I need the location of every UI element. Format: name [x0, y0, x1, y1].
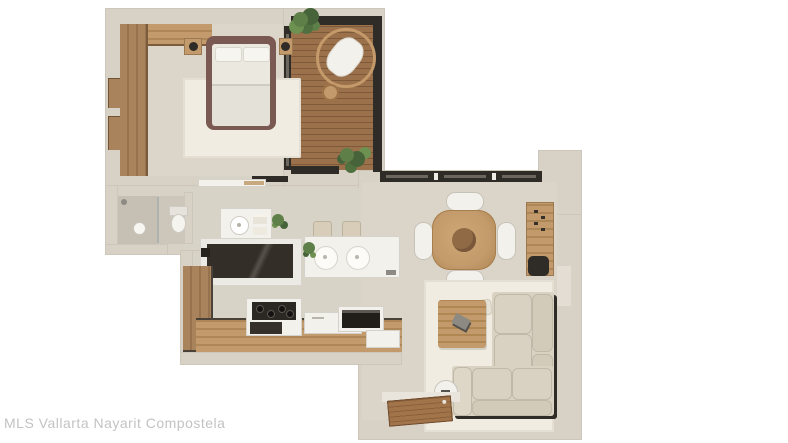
cabinet-handle	[312, 317, 324, 319]
floorplan-render: MLS Vallarta Nayarit Compostela	[0, 0, 788, 443]
wall-bathroom-bottom	[105, 244, 168, 255]
burner-icon	[256, 305, 264, 313]
lamp-icon	[281, 42, 290, 51]
glass-pane	[502, 175, 536, 178]
entry-door	[387, 395, 453, 426]
plant-icon	[293, 12, 308, 27]
kitchen-island	[304, 236, 400, 278]
wall-shelf-niche	[108, 78, 120, 108]
balcony-railing-bottom	[291, 166, 339, 174]
wall-shelf-niche	[108, 116, 120, 150]
glass-pane	[444, 175, 486, 178]
table-centerpiece	[452, 228, 476, 252]
desk-item	[541, 216, 545, 219]
dining-chair	[414, 222, 433, 260]
folded-towels	[253, 227, 267, 235]
dining-table	[432, 210, 496, 270]
cooktop	[252, 302, 296, 320]
shower-glass	[157, 197, 159, 243]
stove-drawer	[250, 322, 282, 334]
door-track-gap	[492, 173, 496, 180]
pillow	[215, 47, 242, 62]
burner-icon	[278, 305, 286, 313]
shower-head-icon	[121, 199, 127, 205]
oven-unit	[338, 306, 384, 332]
vanity	[220, 208, 272, 240]
towel-rail	[244, 181, 264, 185]
desk-item	[541, 228, 545, 231]
toilet-bowl	[171, 214, 186, 233]
door-handle-icon	[442, 400, 446, 404]
wall-kitchen-bottom	[180, 352, 402, 365]
door-track-gap	[434, 173, 438, 180]
hanging-chair	[316, 28, 376, 88]
hanging-chair-cushion	[321, 32, 369, 82]
sink-drain	[237, 223, 241, 227]
kitchen-cabinet-end	[366, 330, 400, 348]
sofa-cushion	[472, 368, 512, 400]
burner-icon	[286, 310, 294, 318]
plant-icon	[303, 242, 315, 254]
plant-icon	[272, 214, 284, 226]
wardrobe-top-cabinet	[148, 24, 212, 46]
cabinet-handle	[201, 248, 210, 257]
sofa-back-cushion	[532, 294, 553, 352]
dining-chair	[497, 222, 516, 260]
island-fixture	[386, 270, 396, 275]
wardrobe	[120, 24, 148, 176]
bed	[206, 36, 276, 130]
balcony-side-table	[322, 84, 339, 101]
coffee-table	[438, 300, 486, 348]
desk-item	[534, 222, 538, 225]
wall-bathroom-divider	[184, 192, 193, 244]
sofa-cushion	[494, 294, 532, 334]
fridge-front	[207, 244, 293, 278]
plant-icon	[340, 148, 354, 162]
plate-center	[323, 255, 327, 259]
sofa-section-chaise	[452, 366, 554, 416]
dining-chair	[446, 192, 484, 211]
lamp-icon	[189, 42, 198, 51]
glass-pane	[386, 175, 428, 178]
coffee-table-books	[451, 313, 470, 330]
right-wall-niche	[557, 266, 571, 306]
duvet	[212, 84, 270, 126]
plate-center	[355, 255, 359, 259]
tall-cabinet-fridge	[200, 238, 302, 286]
desk-chair	[528, 256, 549, 276]
pillow	[243, 47, 270, 62]
balcony-railing-right	[373, 16, 382, 172]
folded-towels	[253, 214, 267, 224]
stove-unit	[246, 298, 302, 336]
sofa-cushion	[512, 368, 552, 400]
sofa-back-cushion	[472, 400, 552, 416]
bathroom-floor-lamp	[133, 222, 146, 235]
oven-door	[342, 310, 380, 328]
desk-item	[534, 210, 538, 213]
watermark-text: MLS Vallarta Nayarit Compostela	[4, 415, 225, 431]
burner-icon	[267, 310, 275, 318]
living-sliding-door	[380, 171, 542, 182]
